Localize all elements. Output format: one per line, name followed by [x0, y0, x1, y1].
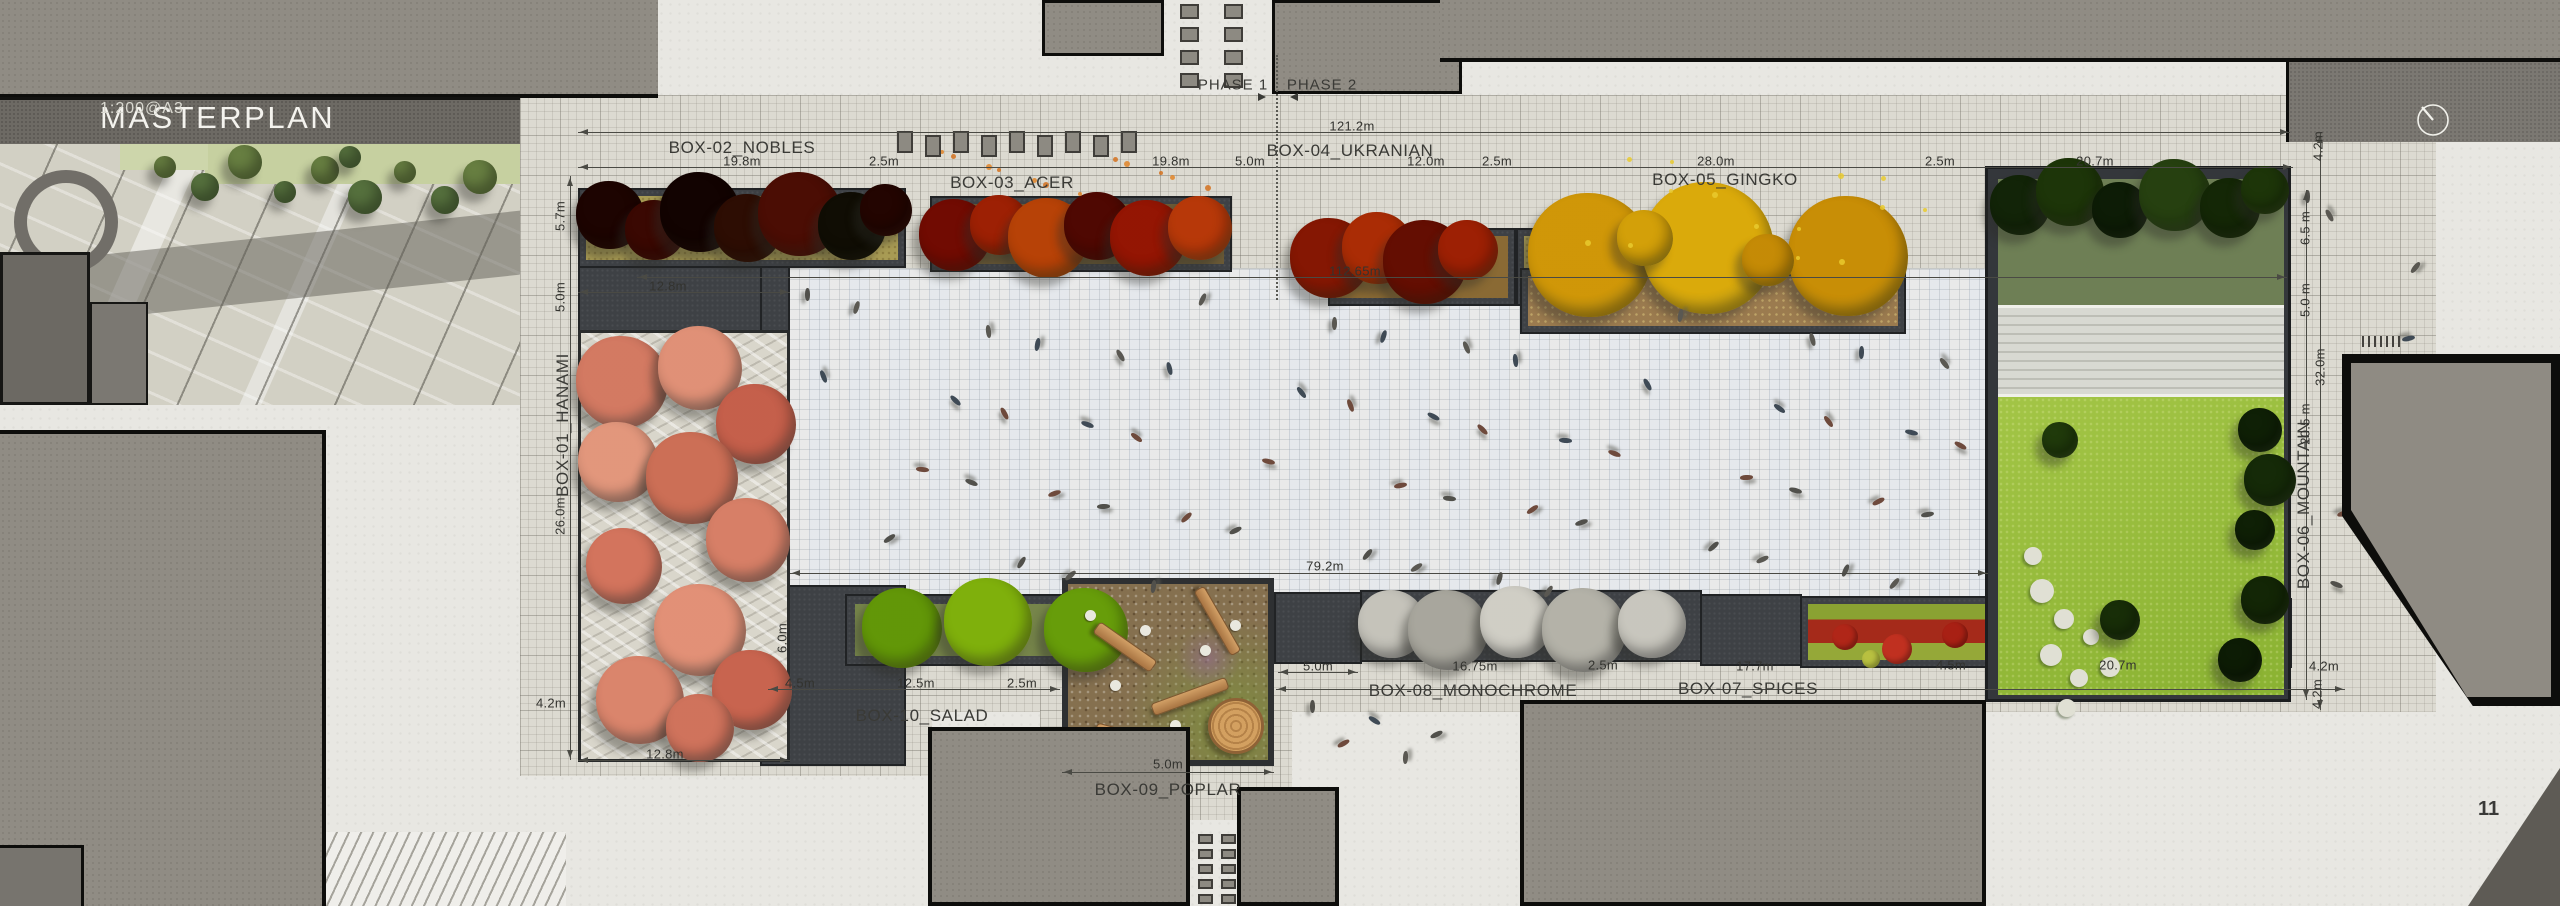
- dimension-line: [578, 760, 790, 761]
- mountain-tree: [2218, 638, 2262, 682]
- leaf-scatter: [997, 168, 1001, 172]
- market-stall-icon: [1221, 894, 1236, 904]
- dim-label-top-12-0: 12.0m: [1407, 154, 1445, 169]
- box-label-box-05: BOX-05_GINGKO: [1652, 170, 1798, 190]
- mountain-tree: [2139, 159, 2211, 231]
- dim-label-left-4-2: 4.2m: [536, 696, 566, 711]
- dim-label-left-5-7: 5.7m: [553, 201, 568, 231]
- gingko-tree: [1617, 210, 1673, 266]
- market-stall-icon: [897, 131, 913, 153]
- dim-label-right-20-5: 20.5 m: [2298, 403, 2313, 445]
- mountain-tree: [2100, 600, 2140, 640]
- box-label-box-09: BOX-09_POPLAR: [1095, 780, 1242, 800]
- building-top-mid: [1042, 0, 1164, 56]
- leaf-scatter: [1797, 227, 1801, 231]
- spices-planting: [1882, 634, 1912, 664]
- dim-label-poplar-5-0-side: 5.0m: [1303, 659, 1333, 674]
- building-bottom-left-small: [0, 845, 84, 906]
- path-monochrome-east: [1700, 594, 1802, 666]
- dim-label-bot-20-7: 20.7m: [2099, 658, 2137, 673]
- leaf-scatter: [1796, 256, 1800, 260]
- market-stall-icon: [1121, 131, 1137, 153]
- dim-label-bot-12-5: 12.5m: [897, 676, 935, 691]
- salad-tree: [1044, 588, 1128, 672]
- leaf-scatter: [1585, 240, 1591, 246]
- stepping-stone: [2083, 629, 2099, 645]
- market-stall-icon: [953, 131, 969, 153]
- fence-tick: [2392, 336, 2394, 347]
- inset-building: [90, 302, 148, 405]
- context-plan-inset: [0, 142, 520, 405]
- title-scale-text: 1:200@A3: [100, 100, 184, 118]
- dim-label-inner-width: 112.65m: [1329, 264, 1381, 279]
- dimension-line: [790, 573, 1988, 574]
- market-stall-icon: [1065, 131, 1081, 153]
- box-label-box-06: BOX-06_MOUNTAIN: [2294, 421, 2314, 589]
- inset-tree: [339, 146, 361, 168]
- hanami-tree: [576, 336, 668, 428]
- dim-label-bot-4-5-b: 4.5m: [1936, 658, 1966, 673]
- inset-building: [0, 252, 90, 405]
- leaf-scatter: [1159, 171, 1163, 175]
- person-figure: [1310, 700, 1315, 713]
- dim-label-right-5-0: 5.0 m: [2298, 283, 2313, 317]
- leaf-scatter: [1205, 185, 1211, 191]
- market-stall-icon: [1221, 864, 1236, 874]
- leaf-scatter: [1880, 205, 1885, 210]
- dim-label-top-28-0: 28.0m: [1697, 154, 1735, 169]
- dim-label-plaza-width: 79.2m: [1306, 559, 1344, 574]
- inset-tree: [191, 173, 219, 201]
- nobles-tree: [860, 184, 912, 236]
- market-stall-icon: [1224, 27, 1243, 42]
- path-poplar-east: [1274, 592, 1362, 664]
- market-stall-icon: [1224, 4, 1243, 19]
- dim-label-bot-16-75: 16.75m: [1452, 659, 1497, 674]
- mountain-tree: [2244, 454, 2296, 506]
- market-stall-icon: [1009, 131, 1025, 153]
- building-bottom-center-b: [1237, 787, 1339, 906]
- market-stall-icon: [1180, 4, 1199, 19]
- person-figure: [1337, 738, 1351, 749]
- stepping-stone: [2054, 609, 2074, 629]
- market-stall-icon: [1180, 73, 1199, 88]
- spices-planting: [1832, 624, 1858, 650]
- market-stall-icon: [1198, 834, 1213, 844]
- dim-label-hanami-12-8-bot: 12.8m: [646, 747, 684, 762]
- inset-tree: [431, 186, 459, 214]
- building-bottom-center-c: [1520, 700, 1986, 906]
- fence-tick: [2374, 336, 2376, 347]
- dim-label-bot-4-2-v: 4.2m: [2310, 679, 2325, 709]
- building-bottom-center-a: [928, 727, 1190, 906]
- market-stall-icon: [1221, 834, 1236, 844]
- box-label-box-03: BOX-03_ACER: [950, 173, 1074, 193]
- masterplan-drawing: PHASE 1 PHASE 2 BOX-01_HANAMIBOX-02_NOBL…: [0, 0, 2560, 906]
- leaf-scatter: [1627, 157, 1632, 162]
- leaf-scatter: [951, 154, 956, 159]
- dimension-line: [637, 277, 2287, 278]
- person-figure: [805, 288, 810, 301]
- pebble: [1140, 625, 1151, 636]
- salad-tree: [944, 578, 1032, 666]
- pebble: [1200, 645, 1211, 656]
- page-number: 11: [2478, 798, 2499, 821]
- person-figure: [1332, 317, 1337, 330]
- dim-label-top-2-5-c: 2.5m: [1925, 154, 1955, 169]
- fence-tick: [2362, 336, 2364, 347]
- phase-arrow-icon: [1286, 93, 1298, 101]
- mountain-tree: [2238, 408, 2282, 452]
- leaf-scatter: [1839, 259, 1845, 265]
- tree-trunk-disc: [1208, 698, 1264, 754]
- hanami-tree: [578, 422, 658, 502]
- pebble: [1085, 610, 1096, 621]
- phase-2-label: PHASE 2: [1287, 77, 1357, 94]
- mountain-tree: [2241, 166, 2289, 214]
- market-stall-icon: [1221, 849, 1236, 859]
- dim-label-top-2-5-a: 2.5m: [869, 154, 899, 169]
- box-label-box-10: BOX-10_SALAD: [856, 706, 989, 726]
- dim-label-top-19-8-b: 19.8m: [1152, 154, 1190, 169]
- fence-tick: [2380, 336, 2382, 347]
- stepping-stone: [2030, 579, 2054, 603]
- stepping-stone: [2024, 547, 2042, 565]
- market-stall-icon: [1198, 879, 1213, 889]
- inset-tree: [274, 181, 296, 203]
- phase-arrow-icon: [1258, 93, 1270, 101]
- dim-label-salad-6-0: 6.0m: [775, 623, 790, 653]
- phase-divider-line: [1276, 55, 1278, 300]
- inset-tree: [348, 180, 382, 214]
- leaf-scatter: [1628, 243, 1633, 248]
- leaf-scatter: [1113, 157, 1118, 162]
- mountain-tree: [2241, 576, 2289, 624]
- leaf-scatter: [1712, 192, 1718, 198]
- spices-planting: [1862, 650, 1880, 668]
- mountain-tree: [2042, 422, 2078, 458]
- dim-label-top-19-8-a: 19.8m: [723, 154, 761, 169]
- dimension-line: [578, 132, 2290, 133]
- mountain-tree: [2235, 510, 2275, 550]
- acer-tree: [1168, 196, 1232, 260]
- fence-tick: [2368, 336, 2370, 347]
- stairs-ramp: [326, 832, 566, 906]
- leaf-scatter: [1754, 224, 1759, 229]
- person-figure: [1430, 729, 1444, 739]
- leaf-scatter: [1881, 176, 1886, 181]
- leaf-scatter: [1670, 160, 1674, 164]
- dim-label-overall-width: 121.2m: [1329, 119, 1374, 134]
- dimension-line: [1062, 772, 1274, 773]
- fence-tick: [2398, 336, 2400, 347]
- leaf-scatter: [1078, 192, 1082, 196]
- spices-planting: [1942, 622, 1968, 648]
- market-stall-icon: [1198, 894, 1213, 904]
- hanami-tree: [586, 528, 662, 604]
- market-stall-icon: [1198, 849, 1213, 859]
- inset-tree: [228, 145, 262, 179]
- pebble: [1230, 620, 1241, 631]
- inset-tree: [311, 156, 339, 184]
- box-label-box-07: BOX-07_SPICES: [1678, 679, 1818, 699]
- market-stall-icon: [1180, 27, 1199, 42]
- dim-label-bot-17-7: 17.7m: [1736, 659, 1774, 674]
- dim-label-right-32-0: 32.0m: [2313, 348, 2328, 386]
- market-stall-icon: [1198, 864, 1213, 874]
- market-stall-icon: [981, 135, 997, 157]
- dim-label-top-5-0: 5.0m: [1235, 154, 1265, 169]
- stepping-stone: [2040, 644, 2062, 666]
- dim-label-left-26-0: 26.0m: [553, 497, 568, 535]
- market-stall-icon: [1093, 135, 1109, 157]
- dim-label-right-4-2-top: 4.2m: [2311, 131, 2326, 161]
- market-stall-icon: [1037, 135, 1053, 157]
- dim-label-hanami-12-8-top: 12.8m: [649, 279, 687, 294]
- person-figure: [1403, 751, 1409, 764]
- pebble: [1110, 680, 1121, 691]
- inset-tree: [394, 161, 416, 183]
- person-figure: [1368, 715, 1382, 726]
- box-label-box-08: BOX-08_MONOCHROME: [1369, 681, 1578, 701]
- dim-label-left-5-0: 5.0m: [553, 282, 568, 312]
- dim-label-bot-4-2-h: 4.2m: [2309, 659, 2339, 674]
- salad-tree: [862, 588, 942, 668]
- inset-tree: [154, 156, 176, 178]
- leaf-scatter: [1838, 173, 1844, 179]
- dim-label-bot-2-5-a: 2.5m: [1007, 676, 1037, 691]
- stepping-stone: [2070, 669, 2088, 687]
- market-stall-icon: [1180, 50, 1199, 65]
- dim-label-poplar-5-0-bot: 5.0m: [1153, 757, 1183, 772]
- inset-tree: [463, 160, 497, 194]
- gingko-tree: [1788, 196, 1908, 316]
- dim-label-bot-4-5-a: 4.5m: [785, 676, 815, 691]
- market-stall-icon: [1221, 879, 1236, 889]
- north-arrow-icon: [2411, 98, 2455, 142]
- ukranian-tree: [1438, 220, 1498, 280]
- building-top-left: [0, 0, 658, 98]
- monochrome-tree: [1480, 586, 1552, 658]
- dim-label-top-20-7: 20.7m: [2076, 154, 2114, 169]
- market-stall-icon: [925, 135, 941, 157]
- market-stall-icon: [1224, 50, 1243, 65]
- dim-label-top-2-5-b: 2.5m: [1482, 154, 1512, 169]
- dimension-line: [2320, 133, 2321, 710]
- gingko-tree: [1742, 234, 1794, 286]
- building-top-right-b: [1440, 0, 2560, 62]
- dim-label-bot-2-5-b: 2.5m: [1588, 658, 1618, 673]
- box-label-box-01: BOX-01_HANAMI: [553, 353, 573, 497]
- phase-1-label: PHASE 1: [1198, 77, 1268, 94]
- building-bottom-left: [0, 430, 326, 906]
- monochrome-tree: [1618, 590, 1686, 658]
- stepping-stone: [2058, 699, 2076, 717]
- building-bottom-right-wedge: [2468, 768, 2560, 906]
- leaf-scatter: [1170, 175, 1175, 180]
- leaf-scatter: [1923, 208, 1927, 212]
- dim-label-right-6-5: 6.5 m: [2298, 211, 2313, 245]
- hanami-tree: [706, 498, 790, 582]
- path-nobles-south: [578, 266, 790, 332]
- fence-tick: [2386, 336, 2388, 347]
